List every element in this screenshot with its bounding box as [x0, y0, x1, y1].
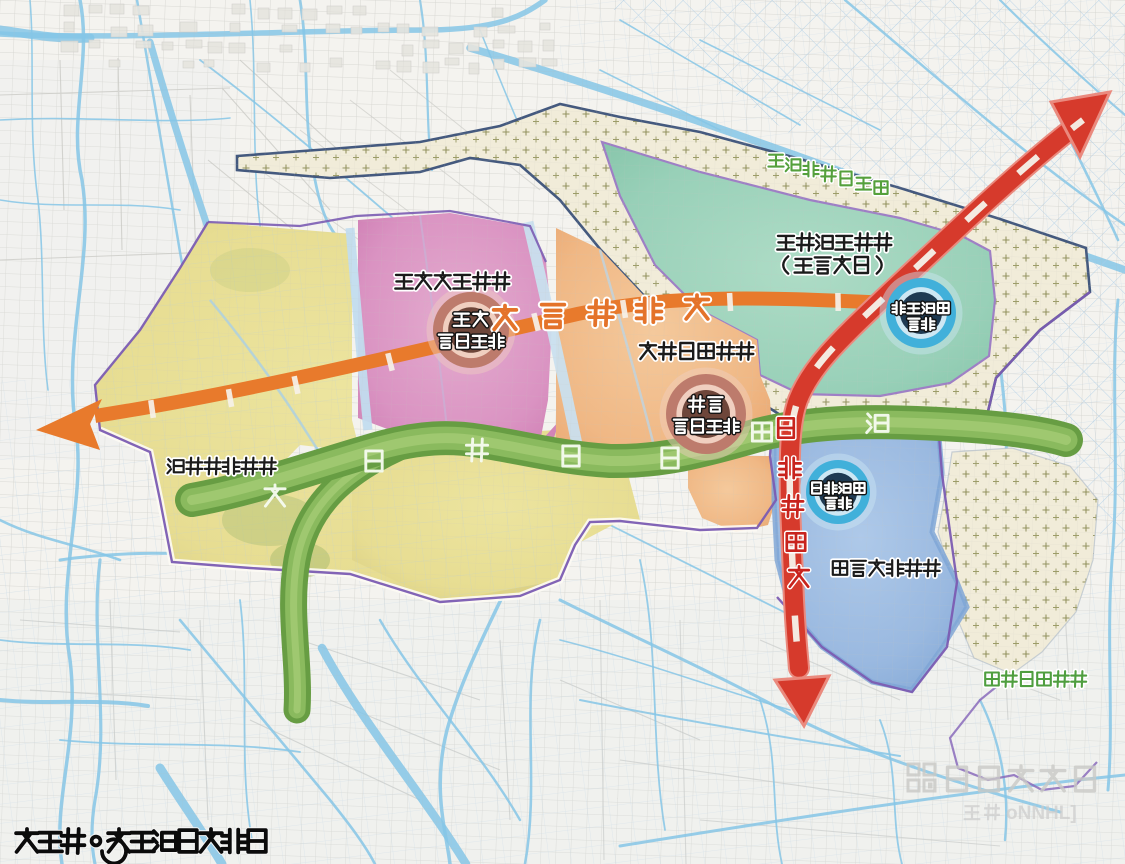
- svg-text:oNNHL]: oNNHL]: [1006, 803, 1077, 824]
